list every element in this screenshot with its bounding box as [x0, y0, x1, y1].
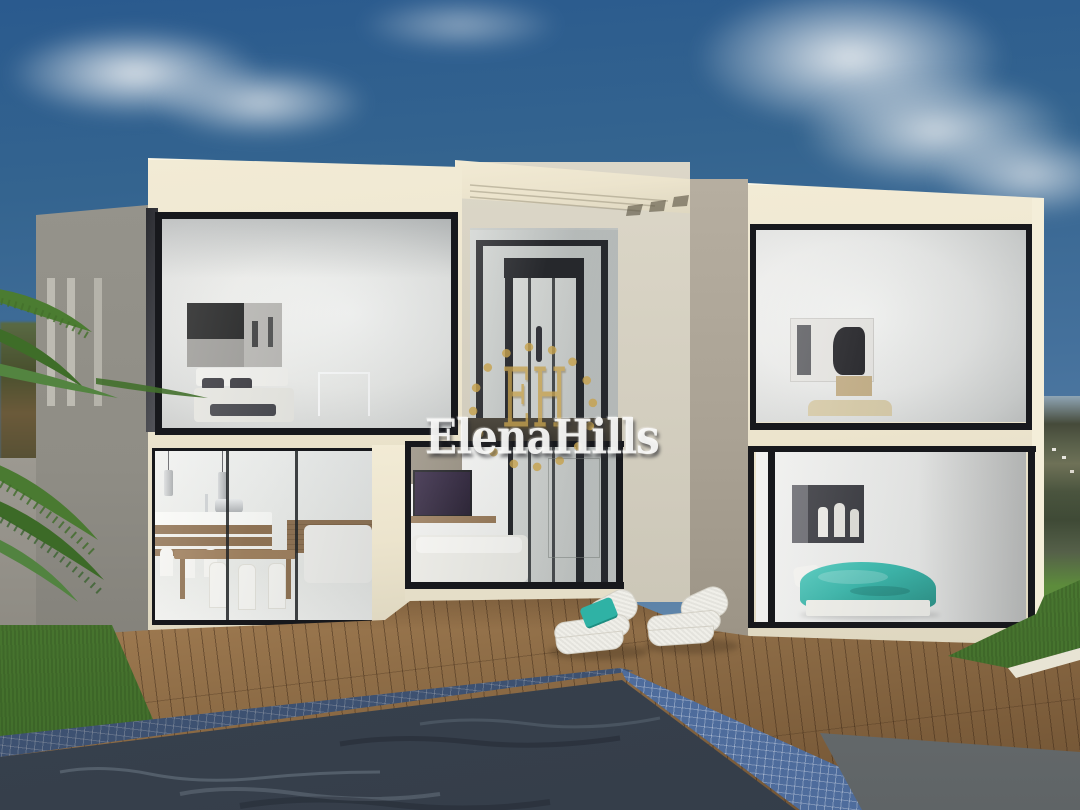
wicker-lounger-2	[641, 586, 739, 655]
ripple-dark	[240, 799, 550, 808]
palm-frond	[96, 378, 208, 398]
ripple	[420, 718, 660, 727]
lounger-base	[648, 625, 715, 647]
palm-fronds	[0, 288, 208, 602]
villa-render: EH ElenaHills	[0, 0, 1080, 810]
pool-ripples	[60, 718, 660, 809]
ripple	[60, 768, 380, 780]
wicker-lounger-1	[548, 592, 648, 662]
ripple-dark	[340, 738, 620, 745]
foliage-and-ripples	[0, 0, 1080, 810]
palm-frond	[0, 288, 92, 332]
